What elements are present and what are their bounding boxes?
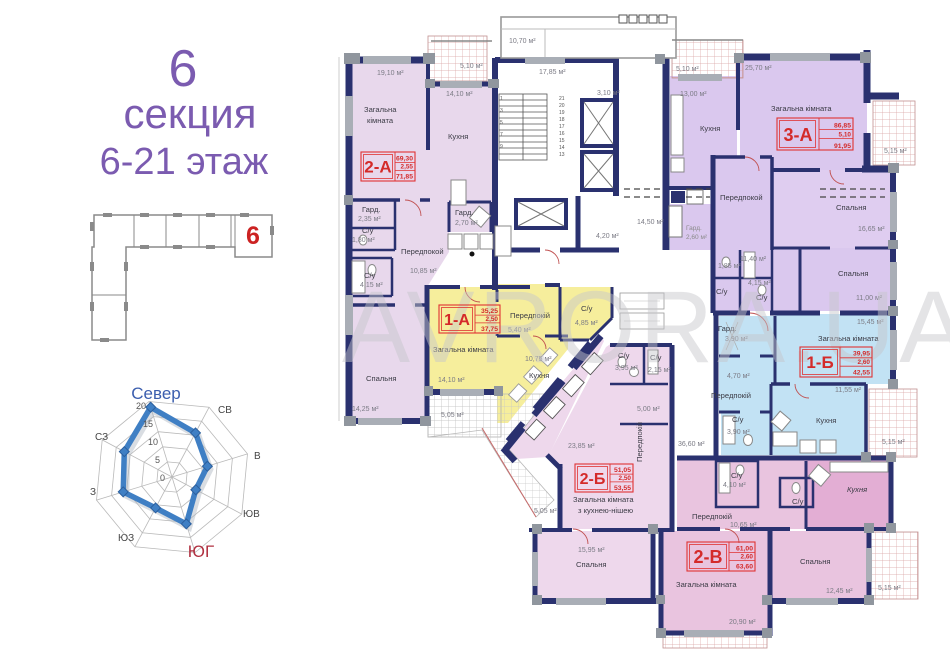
svg-text:9: 9 [500,144,503,150]
svg-text:2,60: 2,60 [741,554,754,561]
svg-text:3,90 м²: 3,90 м² [727,429,750,436]
svg-text:2-В: 2-В [693,547,722,567]
svg-text:2,35 м²: 2,35 м² [358,216,381,223]
svg-text:Кухня: Кухня [847,485,867,494]
svg-text:35,25: 35,25 [481,308,498,315]
svg-text:63,60: 63,60 [736,564,753,571]
svg-text:12,45 м²: 12,45 м² [826,588,853,595]
svg-text:з кухнею-нішею: з кухнею-нішею [578,506,633,515]
svg-text:5,00 м²: 5,00 м² [637,406,660,413]
svg-text:5,05 м²: 5,05 м² [534,508,557,515]
svg-text:С/у: С/у [362,226,374,235]
svg-text:19,10 м²: 19,10 м² [377,70,404,77]
svg-text:2,60 м²: 2,60 м² [686,234,708,241]
svg-text:Кухня: Кухня [700,124,720,133]
svg-text:10,70 м²: 10,70 м² [509,38,536,45]
svg-text:2-Б: 2-Б [580,471,606,488]
svg-text:2,55: 2,55 [401,164,414,171]
svg-text:11,40 м²: 11,40 м² [740,256,767,263]
svg-text:Гард.: Гард. [362,205,381,214]
svg-text:25,70 м²: 25,70 м² [745,65,772,72]
svg-text:Загальна кімната: Загальна кімната [573,495,634,504]
svg-text:23,85 м²: 23,85 м² [568,443,595,450]
svg-text:С/у: С/у [731,471,743,480]
svg-text:5,15 м²: 5,15 м² [878,585,901,592]
svg-text:С/у: С/у [732,415,744,424]
svg-text:3: 3 [500,108,503,114]
svg-text:37,75: 37,75 [481,326,498,333]
svg-text:1-А: 1-А [444,312,470,329]
svg-text:51,05: 51,05 [614,467,631,474]
svg-text:5,05 м²: 5,05 м² [441,412,464,419]
svg-text:С/у: С/у [792,497,804,506]
svg-text:17,85 м²: 17,85 м² [539,69,566,76]
svg-text:2,70 м²: 2,70 м² [455,220,478,227]
svg-text:5: 5 [155,455,160,465]
svg-text:Гард.: Гард. [455,208,474,217]
svg-text:5,15 м²: 5,15 м² [884,148,907,155]
svg-text:14,25 м²: 14,25 м² [352,406,379,413]
svg-text:71,85: 71,85 [396,174,413,181]
svg-text:18: 18 [559,117,565,123]
svg-text:5,10 м²: 5,10 м² [460,63,483,70]
svg-text:20: 20 [136,401,146,411]
svg-text:2,50: 2,50 [619,475,632,482]
svg-text:Загальна кімната: Загальна кімната [676,580,737,589]
svg-text:19: 19 [559,110,565,116]
svg-text:39,95: 39,95 [853,351,870,358]
svg-text:1-Б: 1-Б [806,353,833,372]
svg-text:14,10 м²: 14,10 м² [446,91,473,98]
svg-text:10,65 м²: 10,65 м² [730,522,757,529]
svg-text:кімната: кімната [367,116,394,125]
svg-text:5,10: 5,10 [839,132,852,139]
svg-text:13: 13 [559,152,565,158]
svg-text:4,20 м²: 4,20 м² [596,233,619,240]
svg-text:6: 6 [246,222,260,250]
svg-text:15: 15 [143,419,153,429]
svg-text:З: З [90,487,96,498]
svg-text:20,90 м²: 20,90 м² [729,619,756,626]
svg-text:4,10 м²: 4,10 м² [723,482,746,489]
svg-text:Передпокой: Передпокой [401,247,444,256]
svg-text:13,00 м²: 13,00 м² [680,91,707,98]
svg-text:0: 0 [160,473,165,483]
svg-text:Спальня: Спальня [576,560,607,569]
svg-text:1,85 м²: 1,85 м² [718,263,741,270]
svg-text:5,10 м²: 5,10 м² [676,66,699,73]
svg-text:21: 21 [559,96,565,102]
svg-text:Загальна кімната: Загальна кімната [771,104,832,113]
svg-text:3,10 м²: 3,10 м² [597,90,620,97]
svg-text:ЮВ: ЮВ [243,509,260,520]
svg-text:61,00: 61,00 [736,545,753,552]
svg-text:5,15 м²: 5,15 м² [882,439,905,446]
svg-text:5: 5 [500,120,503,126]
svg-text:СВ: СВ [218,405,232,416]
svg-text:16: 16 [559,131,565,137]
svg-text:15,95 м²: 15,95 м² [578,547,605,554]
svg-text:17: 17 [559,124,565,130]
svg-text:Передпокій: Передпокій [692,512,732,521]
svg-text:2,50: 2,50 [486,316,499,323]
svg-text:36,60 м²: 36,60 м² [678,441,705,448]
svg-text:10: 10 [148,437,158,447]
svg-text:42,55: 42,55 [853,370,870,377]
svg-text:2-А: 2-А [364,158,391,177]
svg-text:20: 20 [559,103,565,109]
svg-text:1,80 м²: 1,80 м² [352,237,375,244]
svg-text:Спальня: Спальня [800,557,831,566]
svg-text:Передпокій: Передпокій [635,422,644,462]
svg-text:16,65 м²: 16,65 м² [858,226,885,233]
svg-text:Спальня: Спальня [836,203,867,212]
svg-text:AVRORA.UA: AVRORA.UA [342,270,950,384]
svg-text:Загальна: Загальна [364,105,397,114]
svg-text:53,55: 53,55 [614,485,631,492]
svg-text:секция: секция [124,90,257,137]
svg-text:Передпокій: Передпокій [711,391,751,400]
svg-text:11,55 м²: 11,55 м² [835,387,862,394]
svg-text:ЮГ: ЮГ [188,542,214,561]
svg-text:7: 7 [500,132,503,138]
svg-text:15: 15 [559,138,565,144]
svg-text:Гард.: Гард. [686,225,702,232]
svg-text:Кухня: Кухня [816,416,836,425]
svg-text:6-21 этаж: 6-21 этаж [100,141,269,183]
svg-text:В: В [254,451,261,462]
svg-text:ЮЗ: ЮЗ [118,533,134,544]
svg-text:2,60: 2,60 [858,359,871,366]
svg-text:14: 14 [559,145,565,151]
svg-text:69,30: 69,30 [396,155,413,162]
svg-text:14,50 м²: 14,50 м² [637,219,664,226]
svg-text:СЗ: СЗ [95,432,108,443]
svg-text:Кухня: Кухня [448,132,468,141]
svg-text:Передпокой: Передпокой [720,193,763,202]
svg-text:1: 1 [500,96,503,102]
svg-text:3-А: 3-А [783,125,812,145]
svg-text:86,85: 86,85 [834,123,851,130]
svg-text:91,95: 91,95 [834,143,851,150]
